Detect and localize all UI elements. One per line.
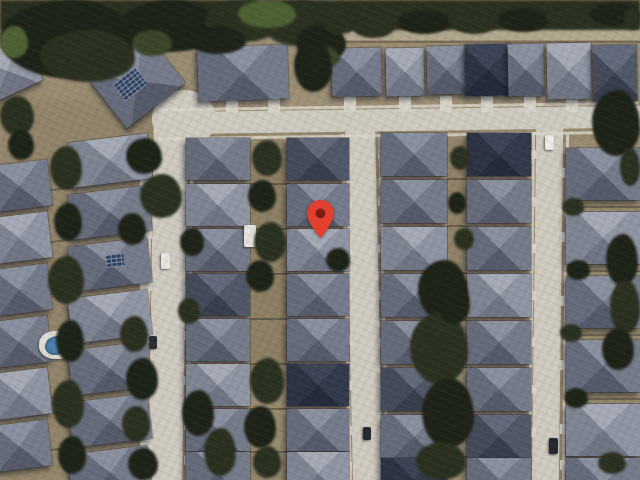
tree — [8, 130, 34, 160]
tree — [52, 380, 84, 428]
pin-dot — [315, 208, 325, 218]
tree — [598, 452, 626, 474]
tree — [452, 14, 496, 34]
tree — [422, 378, 474, 448]
map-pin[interactable] — [307, 200, 334, 238]
tree — [50, 146, 82, 190]
satellite-map[interactable] — [0, 0, 640, 480]
tree — [40, 30, 135, 82]
tree — [398, 10, 450, 34]
tree — [120, 316, 148, 352]
tree — [546, 6, 592, 28]
tree — [140, 174, 182, 218]
tree — [606, 234, 638, 286]
pin-shape — [307, 200, 334, 238]
tree — [450, 146, 470, 170]
tree — [126, 138, 162, 174]
trees — [0, 0, 640, 480]
tree — [498, 8, 548, 32]
tree — [180, 228, 204, 256]
tree — [566, 260, 590, 280]
tree — [122, 406, 150, 442]
tree — [454, 228, 474, 250]
tree — [250, 358, 284, 404]
tree — [448, 192, 466, 214]
tree — [132, 30, 172, 56]
tree — [48, 256, 84, 304]
tree — [294, 40, 332, 92]
tree — [118, 213, 146, 245]
tree — [592, 90, 640, 156]
tree — [204, 428, 236, 476]
tree — [246, 260, 274, 292]
tree — [254, 222, 286, 262]
tree — [560, 324, 582, 342]
tree — [253, 446, 281, 478]
tree — [58, 436, 86, 474]
tree — [416, 442, 466, 480]
tree — [252, 140, 282, 176]
tree — [438, 282, 470, 324]
tree — [620, 148, 640, 186]
tree — [0, 26, 28, 58]
tree — [128, 448, 158, 480]
tree — [54, 203, 82, 241]
tree — [602, 328, 634, 370]
tree — [238, 0, 296, 28]
tree — [248, 180, 276, 212]
tree — [326, 248, 350, 272]
tree — [188, 26, 246, 54]
tree — [352, 16, 394, 38]
tree — [56, 320, 84, 362]
tree — [610, 280, 640, 334]
tree — [562, 198, 584, 216]
tree — [178, 298, 200, 324]
tree — [624, 8, 640, 30]
tree — [182, 390, 214, 436]
tree — [126, 358, 158, 400]
tree — [564, 388, 588, 408]
tree — [244, 406, 276, 448]
